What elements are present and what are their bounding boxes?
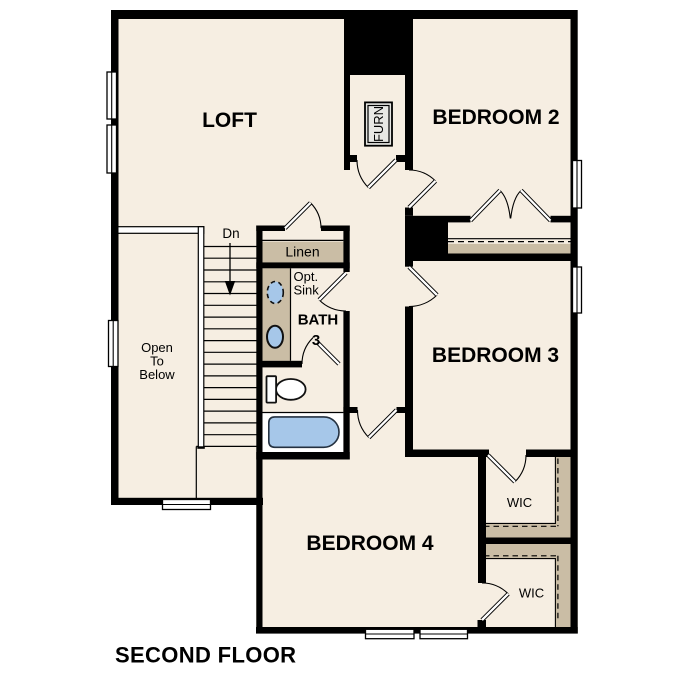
svg-text:Linen: Linen <box>285 244 319 260</box>
svg-text:BEDROOM 2: BEDROOM 2 <box>432 106 559 129</box>
svg-text:WIC: WIC <box>507 495 532 510</box>
svg-text:BEDROOM 3: BEDROOM 3 <box>432 344 559 367</box>
svg-text:WIC: WIC <box>519 585 544 600</box>
svg-text:Below: Below <box>139 367 175 382</box>
svg-text:3: 3 <box>312 332 320 349</box>
svg-text:FURN: FURN <box>371 106 386 142</box>
svg-text:BATH: BATH <box>298 312 339 329</box>
svg-text:Sink: Sink <box>294 283 320 298</box>
svg-text:LOFT: LOFT <box>202 109 257 132</box>
svg-text:Dn: Dn <box>222 226 239 241</box>
svg-text:SECOND FLOOR: SECOND FLOOR <box>115 643 296 668</box>
svg-text:BEDROOM 4: BEDROOM 4 <box>306 532 434 555</box>
